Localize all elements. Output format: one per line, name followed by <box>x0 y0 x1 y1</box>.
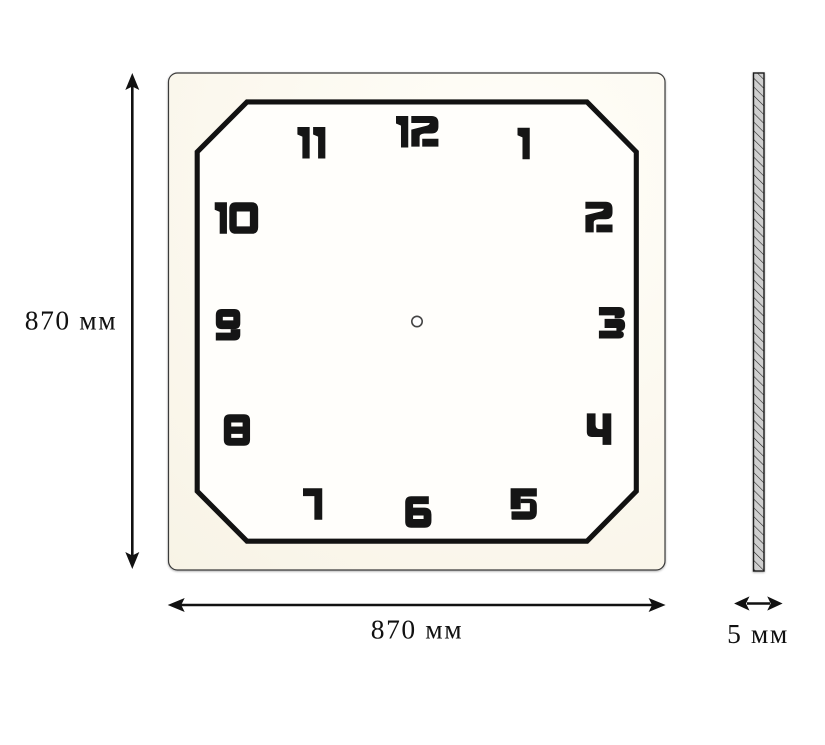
svg-text:870 мм: 870 мм <box>371 613 464 644</box>
svg-text:870 мм: 870 мм <box>25 305 118 336</box>
svg-text:5 мм: 5 мм <box>727 618 789 649</box>
